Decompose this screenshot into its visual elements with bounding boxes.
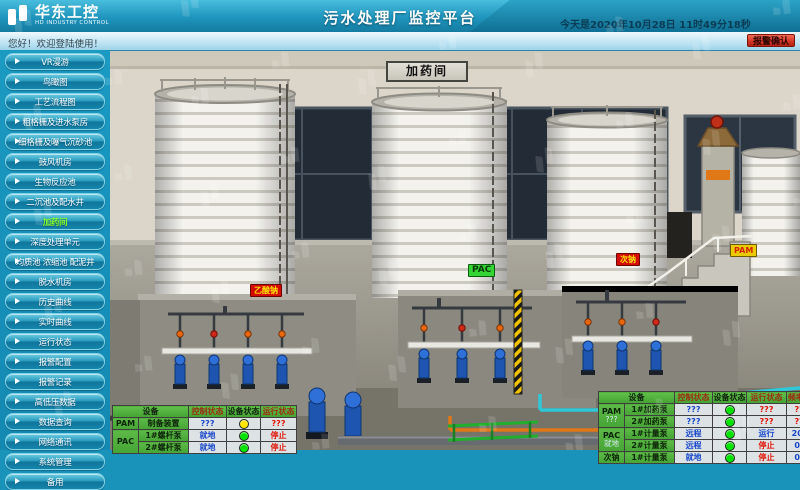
status-indicator <box>725 441 735 451</box>
sidebar-item-dosing-room[interactable]: 加药间 <box>5 213 105 230</box>
control-status: 就地 <box>189 430 227 442</box>
control-status: 远程 <box>675 428 713 440</box>
tank-label-pac: PAC <box>468 264 495 277</box>
arrow-icon <box>15 158 20 164</box>
table-header-row: 设备 控制状态 设备状态 运行状态 <box>113 406 297 418</box>
device-name: 1#计量泵 <box>625 428 675 440</box>
sidebar-item-data-query[interactable]: 数据查询 <box>5 413 105 430</box>
tank-label-pam: PAM <box>730 244 757 257</box>
arrow-icon <box>15 398 20 404</box>
status-indicator <box>725 429 735 439</box>
run-status: 停止 <box>261 430 297 442</box>
arrow-icon <box>15 198 20 204</box>
sidebar-item-realtime-curve[interactable]: 实时曲线 <box>5 313 105 330</box>
status-indicator <box>239 419 249 429</box>
tank-label-sodium-acetate: 乙酸钠 <box>250 284 282 297</box>
arrow-icon <box>15 358 20 364</box>
frequency-value: 20.8 <box>787 428 800 440</box>
device-name: 1#计量泵 <box>625 452 675 464</box>
sidebar-item-dewatering-room[interactable]: 脱水机房 <box>5 273 105 290</box>
frequency-value: ??? <box>787 416 800 428</box>
greeting-text: 您好！欢迎登陆使用！ <box>8 36 103 50</box>
col-header: 运行状态 <box>747 392 787 404</box>
sidebar-item-alarm-config[interactable]: 报警配置 <box>5 353 105 370</box>
device-status <box>713 416 747 428</box>
scene-render <box>110 50 800 450</box>
col-header: 运行状态 <box>261 406 297 418</box>
arrow-icon <box>15 138 20 144</box>
arrow-icon <box>15 78 20 84</box>
hazard-post <box>514 290 522 394</box>
sidebar-item-alarm-record[interactable]: 报警记录 <box>5 373 105 390</box>
device-group: PAC就地 <box>599 428 625 452</box>
sidebar-item-fine-screen-grit-tank[interactable]: 细格栅及曝气沉砂池 <box>5 133 105 150</box>
device-status <box>713 404 747 416</box>
sidebar-item-hv-lv-data[interactable]: 高低压数据 <box>5 393 105 410</box>
col-header: 控制状态 <box>189 406 227 418</box>
device-group: PAM <box>113 418 139 430</box>
arrow-icon <box>15 98 20 104</box>
sidebar-item-history-curve[interactable]: 历史曲线 <box>5 293 105 310</box>
status-indicator <box>725 453 735 463</box>
device-name: 1#螺杆泵 <box>139 430 189 442</box>
sidebar-item-bio-reactor[interactable]: 生物反应池 <box>5 173 105 190</box>
room-title: 加药间 <box>386 61 468 82</box>
run-status: 停止 <box>261 442 297 454</box>
arrow-icon <box>15 298 20 304</box>
table-row: PAM??? 1#加药泵 ??? ??? ??? <box>599 404 800 416</box>
tank-hypochlorite <box>547 105 667 290</box>
run-status: 运行 <box>747 428 787 440</box>
datetime-display: 今天是2020年10月28日 11时49分18秒 <box>560 16 751 31</box>
table-row: 2#加药泵 ??? ??? ??? <box>599 416 800 428</box>
table-row: PAM 制备装置 ??? ??? <box>113 418 297 430</box>
greeting-bar: 您好！欢迎登陆使用！ 报警确认 <box>0 32 800 51</box>
sidebar-item-process-flow[interactable]: 工艺流程图 <box>5 93 105 110</box>
header-bar: 华东工控 HD INDUSTRY CONTROL 污水处理厂监控平台 今天是20… <box>0 0 800 32</box>
sidebar-item-coarse-screen-pump-house[interactable]: 粗格栅及进水泵房 <box>5 113 105 130</box>
status-indicator <box>239 431 249 441</box>
table-row: 次钠 1#计量泵 就地 停止 0.0 <box>599 452 800 464</box>
device-name: 2#加药泵 <box>625 416 675 428</box>
tank-label-hypochlorite: 次钠 <box>616 253 640 266</box>
arrow-icon <box>15 318 20 324</box>
table-row: PAC 1#螺杆泵 就地 停止 <box>113 430 297 442</box>
arrow-icon <box>15 478 20 484</box>
sidebar-item-blower-room[interactable]: 鼓风机房 <box>5 153 105 170</box>
device-group: 次钠 <box>599 452 625 464</box>
right-status-table: 设备 控制状态 设备状态 运行状态 频率Hz 设 PAM??? 1#加药泵 ??… <box>598 391 800 464</box>
status-indicator <box>239 443 249 453</box>
arrow-icon <box>15 238 20 244</box>
arrow-icon <box>15 418 20 424</box>
arrow-icon <box>15 378 20 384</box>
control-status: 就地 <box>189 442 227 454</box>
sidebar-item-running-status[interactable]: 运行状态 <box>5 333 105 350</box>
col-header: 设备 <box>599 392 675 404</box>
col-header: 频率Hz <box>787 392 800 404</box>
run-status: ??? <box>747 404 787 416</box>
left-status-table: 设备 控制状态 设备状态 运行状态 PAM 制备装置 ??? ??? PAC 1… <box>112 405 297 454</box>
sidebar-item-network-comm[interactable]: 网络通讯 <box>5 433 105 450</box>
device-name: 2#螺杆泵 <box>139 442 189 454</box>
arrow-icon <box>15 278 20 284</box>
status-indicator <box>725 405 735 415</box>
sidebar-item-equalization-thickener[interactable]: 均质池 浓缩池 配泥井 <box>5 253 105 270</box>
frequency-value: 0.0 <box>787 452 800 464</box>
arrow-icon <box>15 258 20 264</box>
col-header: 设备状态 <box>227 406 261 418</box>
device-status <box>227 442 261 454</box>
status-indicator <box>725 417 735 427</box>
col-header: 设备状态 <box>713 392 747 404</box>
sidebar-item-birdview[interactable]: 鸟瞰图 <box>5 73 105 90</box>
sidebar-item-advanced-treatment[interactable]: 深度处理单元 <box>5 233 105 250</box>
run-status: 停止 <box>747 452 787 464</box>
alarm-ack-button[interactable]: 报警确认 <box>747 34 795 47</box>
col-header: 控制状态 <box>675 392 713 404</box>
control-status: ??? <box>189 418 227 430</box>
sidebar-item-secondary-clarifier[interactable]: 二沉池及配水井 <box>5 193 105 210</box>
device-name: 1#加药泵 <box>625 404 675 416</box>
arrow-icon <box>15 118 20 124</box>
table-row: 2#螺杆泵 就地 停止 <box>113 442 297 454</box>
table-row: PAC就地 1#计量泵 远程 运行 20.8 <box>599 428 800 440</box>
run-status: ??? <box>261 418 297 430</box>
arrow-icon <box>15 218 20 224</box>
dosing-room-3d-view: 加药间 乙酸钠 PAC 次钠 PAM <box>110 50 800 450</box>
device-status <box>227 430 261 442</box>
control-status: ??? <box>675 404 713 416</box>
device-status <box>227 418 261 430</box>
frequency-value: ??? <box>787 404 800 416</box>
control-status: 就地 <box>675 452 713 464</box>
arrow-icon <box>15 438 20 444</box>
device-name: 制备装置 <box>139 418 189 430</box>
arrow-icon <box>15 458 20 464</box>
arrow-icon <box>15 178 20 184</box>
table-header-row: 设备 控制状态 设备状态 运行状态 频率Hz 设 <box>599 392 800 404</box>
device-status <box>713 428 747 440</box>
metering-pumps <box>581 341 663 375</box>
control-status: ??? <box>675 416 713 428</box>
tank-sodium-acetate <box>155 77 295 306</box>
col-header: 设备 <box>113 406 189 418</box>
sidebar-item-vr-tour[interactable]: VR漫游 <box>5 53 105 70</box>
device-group: PAM??? <box>599 404 625 428</box>
arrow-icon <box>15 58 20 64</box>
device-status <box>713 452 747 464</box>
sidebar-item-spare[interactable]: 备用 <box>5 473 105 490</box>
run-status: ??? <box>747 416 787 428</box>
sidebar-nav: VR漫游 鸟瞰图 工艺流程图 粗格栅及进水泵房 细格栅及曝气沉砂池 鼓风机房 生… <box>0 50 110 450</box>
sidebar-item-system-management[interactable]: 系统管理 <box>5 453 105 470</box>
arrow-icon <box>15 338 20 344</box>
